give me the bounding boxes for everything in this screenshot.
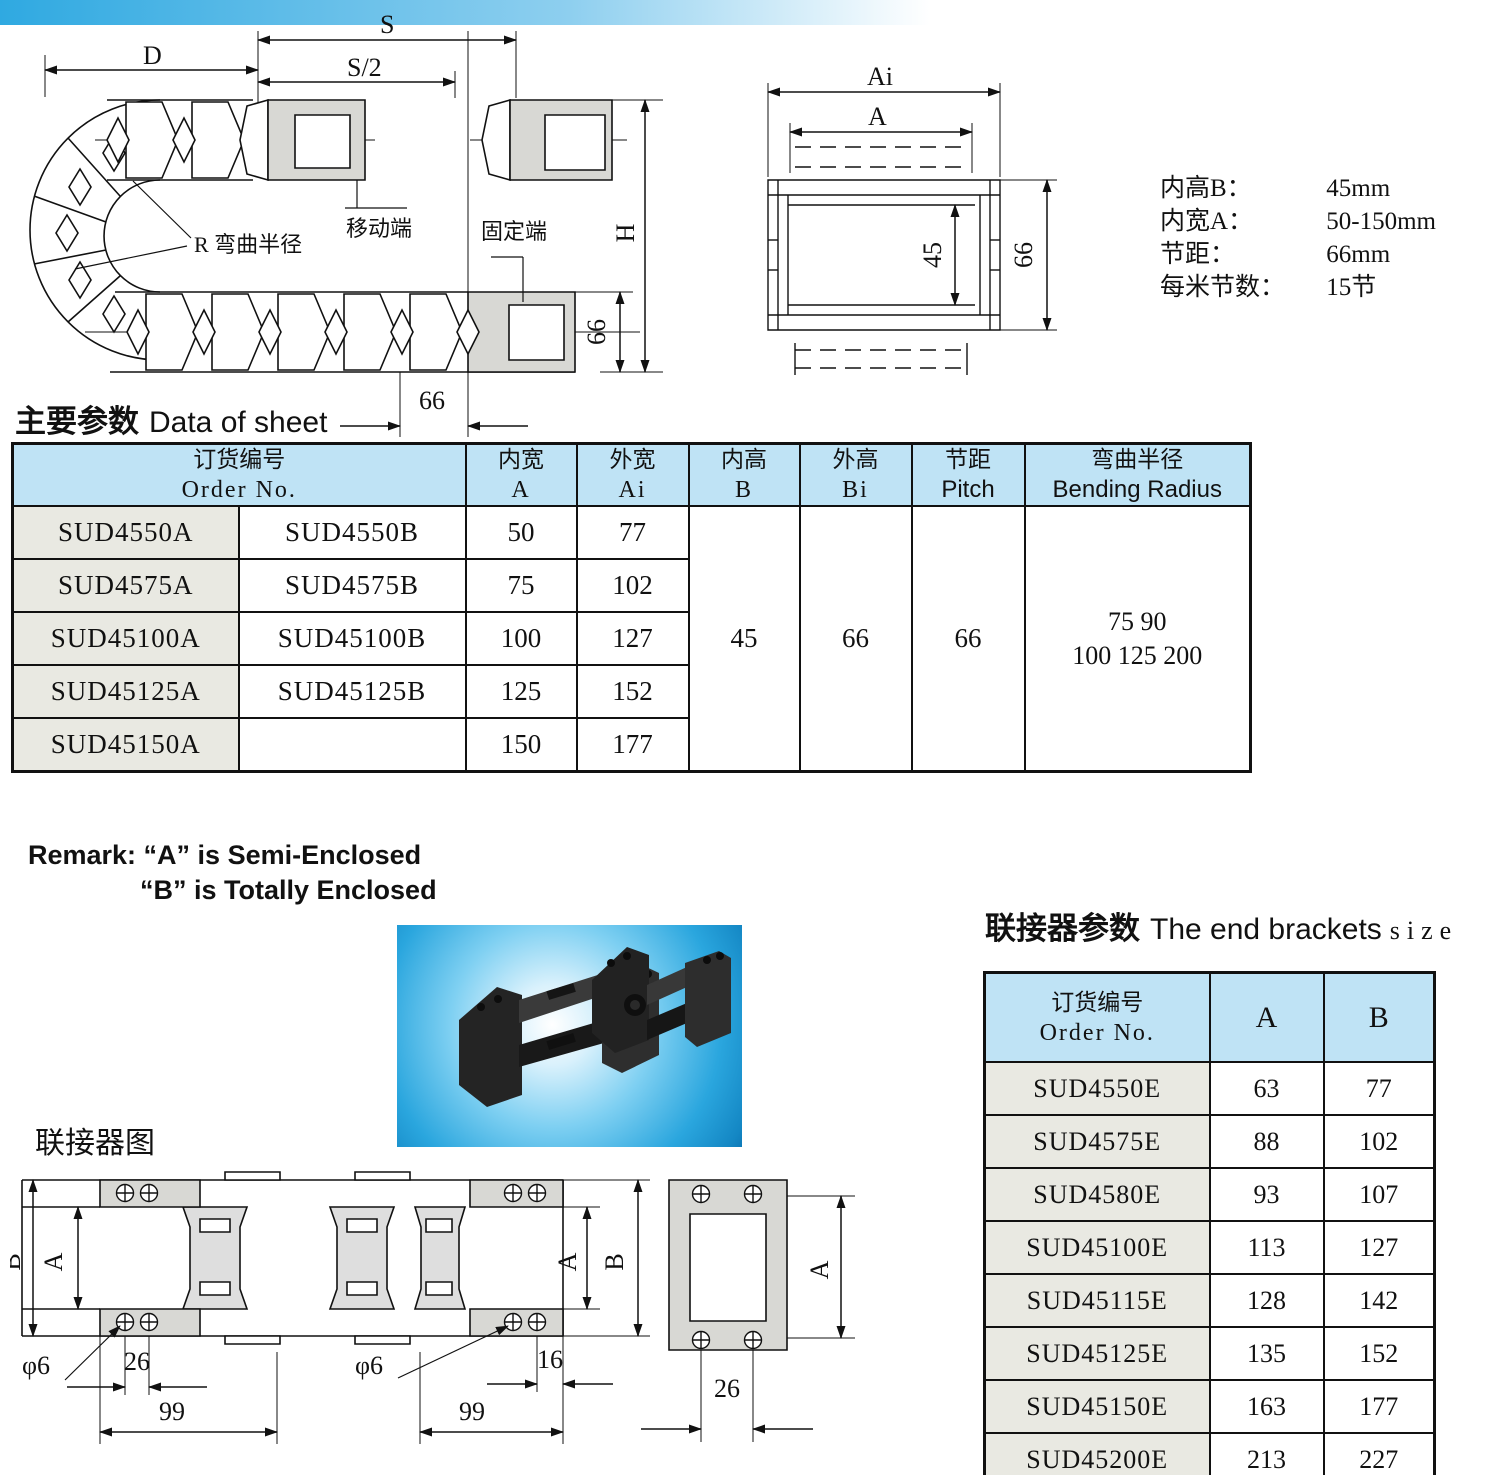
b-cell: 102: [1324, 1115, 1435, 1168]
inner-width-cell: 100: [466, 612, 577, 665]
a-cell: 88: [1210, 1115, 1324, 1168]
outer-width-cell: 127: [577, 612, 689, 665]
dim-66-label: 66: [1009, 242, 1038, 268]
a-cell: 213: [1210, 1433, 1324, 1475]
inner-height-merged-cell: 45: [689, 506, 800, 772]
table-row: SUD4550A SUD4550B 50 77 45 66 66 75 90 1…: [13, 506, 1251, 559]
cross-section-drawing: Ai A 45 66: [755, 55, 1155, 385]
dim-ai-label: Ai: [867, 62, 893, 91]
col-header-a: A: [1210, 973, 1324, 1063]
b-cell: 152: [1324, 1327, 1435, 1380]
order-a-cell: SUD45125A: [13, 665, 239, 718]
order-cell: SUD4575E: [985, 1115, 1210, 1168]
a-cell: 163: [1210, 1380, 1324, 1433]
chain-links: [183, 1207, 465, 1309]
dim-s-label: S: [380, 10, 394, 39]
outer-width-zh: 外宽: [578, 445, 688, 475]
b-cell: 107: [1324, 1168, 1435, 1221]
lower-chain-run: [110, 292, 575, 372]
spec-value: 50-150mm: [1326, 208, 1436, 235]
brackets-title-en: The end brackets: [1150, 913, 1382, 946]
table-row: SUD4575E 88 102: [985, 1115, 1435, 1168]
order-cell: SUD45115E: [985, 1274, 1210, 1327]
b-cell: 227: [1324, 1433, 1435, 1475]
fixed-end-label: 固定端: [481, 219, 547, 244]
end-brackets-photo: [397, 925, 742, 1147]
spec-value: 66mm: [1326, 241, 1390, 268]
remark-line1: Remark: “A” is Semi-Enclosed: [28, 838, 437, 873]
order-header-zh: 订货编号: [14, 445, 465, 475]
table-row: SUD45200E 213 227: [985, 1433, 1435, 1475]
dim-26-left: 26: [124, 1347, 150, 1376]
spec-value: 15节: [1326, 274, 1376, 301]
dim-h-label: H: [611, 223, 640, 242]
spec-label: 内宽A：: [1160, 201, 1320, 237]
col-header-b: B: [1324, 973, 1435, 1063]
outer-width-cell: 177: [577, 718, 689, 772]
brackets-title-size: size: [1390, 916, 1458, 945]
connector-drawing: B A φ6 26 99 A B φ6 16 99 A 26: [10, 1152, 960, 1472]
order-a-cell: SUD4575A: [13, 559, 239, 612]
dim-66-side-label: 66: [582, 319, 611, 345]
dim-b-left: B: [10, 1253, 26, 1270]
datasheet-page: S D S/2 R 弯曲半径 移动端 固定端 H 66 66: [0, 0, 1500, 1475]
bracket-right: [592, 947, 731, 1053]
dim-66-bottom-label: 66: [419, 386, 445, 415]
dim-99-left: 99: [159, 1397, 185, 1426]
order-header-en: Order No.: [14, 475, 465, 505]
b-cell: 77: [1324, 1062, 1435, 1115]
bending-radius-merged-cell: 75 90 100 125 200: [1025, 506, 1251, 772]
spec-row: 内高B： 45mm: [1160, 168, 1436, 201]
order-header-zh: 订货编号: [986, 988, 1209, 1018]
order-b-cell: SUD45100B: [239, 612, 466, 665]
spec-label: 内高B：: [1160, 168, 1320, 204]
outer-height-zh: 外高: [801, 445, 911, 475]
outer-width-cell: 152: [577, 665, 689, 718]
b-cell: 142: [1324, 1274, 1435, 1327]
cross-section-body: [768, 147, 1000, 375]
a-cell: 135: [1210, 1327, 1324, 1380]
order-a-cell: SUD45100A: [13, 612, 239, 665]
table-row: SUD45125E 135 152: [985, 1327, 1435, 1380]
order-b-cell: SUD4575B: [239, 559, 466, 612]
bracket-photo-shapes: [397, 925, 742, 1147]
dim-16: 16: [537, 1345, 563, 1374]
inner-width-cell: 50: [466, 506, 577, 559]
inner-width-cell: 75: [466, 559, 577, 612]
remark-line2: “B” is Totally Enclosed: [140, 873, 437, 908]
order-a-cell: SUD45150A: [13, 718, 239, 772]
pitch-zh: 节距: [913, 445, 1024, 475]
front-view: [669, 1180, 787, 1350]
bend-values-line2: 100 125 200: [1026, 639, 1250, 673]
dim-dia-mid: φ6: [355, 1351, 383, 1380]
sheet-title: 主要参数Data of sheet: [15, 396, 327, 441]
inner-height-en: B: [690, 475, 799, 505]
pitch-en: Pitch: [913, 475, 1024, 505]
inner-width-cell: 125: [466, 665, 577, 718]
spec-row: 每米节数： 15节: [1160, 267, 1436, 300]
col-header-outer-width: 外宽 Ai: [577, 444, 689, 507]
dim-45-label: 45: [918, 242, 947, 268]
order-cell: SUD45200E: [985, 1433, 1210, 1475]
dim-99-mid: 99: [459, 1397, 485, 1426]
outer-width-cell: 77: [577, 506, 689, 559]
cross-section-dims: [768, 83, 1057, 330]
order-cell: SUD4550E: [985, 1062, 1210, 1115]
dim-a-front: A: [805, 1260, 834, 1279]
sheet-title-en: Data of sheet: [149, 406, 327, 439]
col-header-pitch: 节距 Pitch: [912, 444, 1025, 507]
brackets-title-zh: 联接器参数: [985, 911, 1140, 946]
inner-width-cell: 150: [466, 718, 577, 772]
dim-d-label: D: [143, 41, 162, 70]
order-cell: SUD45125E: [985, 1327, 1210, 1380]
a-cell: 93: [1210, 1168, 1324, 1221]
order-cell: SUD45100E: [985, 1221, 1210, 1274]
moving-end-label: 移动端: [346, 216, 412, 241]
dim-a-left: A: [39, 1252, 68, 1271]
chain-side-drawing: S D S/2 R 弯曲半径 移动端 固定端 H 66 66: [15, 5, 695, 442]
spec-row: 内宽A： 50-150mm: [1160, 201, 1436, 234]
a-cell: 63: [1210, 1062, 1324, 1115]
outer-height-en: Bi: [801, 475, 911, 505]
spec-value: 45mm: [1326, 175, 1390, 202]
inner-height-zh: 内高: [690, 445, 799, 475]
table-row: SUD4550E 63 77: [985, 1062, 1435, 1115]
outer-width-en: Ai: [578, 475, 688, 505]
end-bracket-plates: [100, 1180, 563, 1336]
order-b-cell: SUD45125B: [239, 665, 466, 718]
spec-row: 节距： 66mm: [1160, 234, 1436, 267]
outer-height-merged-cell: 66: [800, 506, 912, 772]
col-header-outer-height: 外高 Bi: [800, 444, 912, 507]
col-header-inner-width: 内宽 A: [466, 444, 577, 507]
a-cell: 113: [1210, 1221, 1324, 1274]
upper-chain-run: [107, 100, 612, 180]
b-cell: 177: [1324, 1380, 1435, 1433]
order-b-cell: SUD4550B: [239, 506, 466, 559]
order-cell: SUD45150E: [985, 1380, 1210, 1433]
order-b-cell: [239, 718, 466, 772]
bend-values-line1: 75 90: [1026, 605, 1250, 639]
pitch-merged-cell: 66: [912, 506, 1025, 772]
bend-radius-label: R 弯曲半径: [194, 232, 302, 257]
dim-b-mid: B: [600, 1253, 629, 1270]
order-a-cell: SUD4550A: [13, 506, 239, 559]
table-row: SUD4580E 93 107: [985, 1168, 1435, 1221]
outer-width-cell: 102: [577, 559, 689, 612]
col-header-order: 订货编号 Order No.: [13, 444, 466, 507]
order-header-en: Order No.: [986, 1018, 1209, 1048]
b-cell: 127: [1324, 1221, 1435, 1274]
dim-dia-left: φ6: [22, 1351, 50, 1380]
order-cell: SUD4580E: [985, 1168, 1210, 1221]
table-row: SUD45150E 163 177: [985, 1380, 1435, 1433]
spec-label: 节距：: [1160, 234, 1320, 270]
col-header-order: 订货编号 Order No.: [985, 973, 1210, 1063]
table-row: SUD45100E 113 127: [985, 1221, 1435, 1274]
remark-block: Remark: “A” is Semi-Enclosed “B” is Tota…: [28, 838, 437, 908]
inner-width-en: A: [467, 475, 576, 505]
dim-26-front: 26: [714, 1374, 740, 1403]
bend-en: Bending Radius: [1026, 475, 1250, 505]
table-row: SUD45115E 128 142: [985, 1274, 1435, 1327]
dim-s-half-label: S/2: [347, 53, 382, 82]
spec-text-block: 内高B： 45mm 内宽A： 50-150mm 节距： 66mm 每米节数： 1…: [1160, 168, 1436, 300]
main-data-table: 订货编号 Order No. 内宽 A 外宽 Ai 内高 B 外高 Bi 节距 …: [11, 442, 1249, 773]
spec-label: 每米节数：: [1160, 267, 1320, 303]
inner-width-zh: 内宽: [467, 445, 576, 475]
a-cell: 128: [1210, 1274, 1324, 1327]
col-header-bending-radius: 弯曲半径 Bending Radius: [1025, 444, 1251, 507]
col-header-inner-height: 内高 B: [689, 444, 800, 507]
end-brackets-table: 订货编号 Order No. A B SUD4550E 63 77 SUD457…: [983, 971, 1433, 1475]
bend-zh: 弯曲半径: [1026, 445, 1250, 475]
sheet-title-zh: 主要参数: [15, 404, 139, 439]
brackets-title: 联接器参数The end bracketssize: [985, 903, 1458, 948]
dim-a-label: A: [868, 102, 887, 131]
dim-a-mid: A: [553, 1252, 582, 1271]
